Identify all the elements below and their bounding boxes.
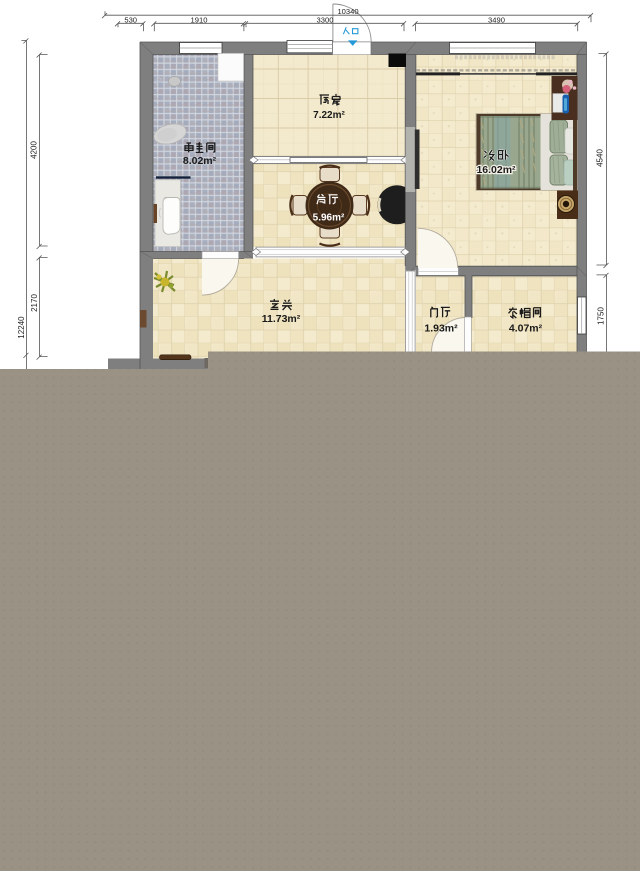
svg-text:7.22m²: 7.22m²	[313, 110, 345, 121]
svg-text:16.02m²: 16.02m²	[476, 164, 516, 176]
svg-text:2170: 2170	[30, 294, 39, 312]
svg-text:5.96m²: 5.96m²	[313, 213, 345, 224]
svg-text:8.02m²: 8.02m²	[183, 155, 217, 167]
svg-text:4.07m²: 4.07m²	[509, 322, 543, 334]
svg-text:4540: 4540	[596, 149, 605, 167]
svg-text:10340: 10340	[337, 7, 358, 16]
svg-text:1.93m²: 1.93m²	[424, 322, 458, 334]
svg-text:4200: 4200	[30, 141, 39, 159]
svg-text:12240: 12240	[17, 316, 26, 339]
svg-text:1910: 1910	[191, 16, 208, 25]
svg-text:11.73m²: 11.73m²	[262, 313, 301, 325]
svg-text:530: 530	[124, 16, 137, 25]
svg-text:3300: 3300	[317, 16, 334, 25]
svg-text:1750: 1750	[597, 307, 606, 325]
svg-text:3490: 3490	[488, 16, 505, 25]
